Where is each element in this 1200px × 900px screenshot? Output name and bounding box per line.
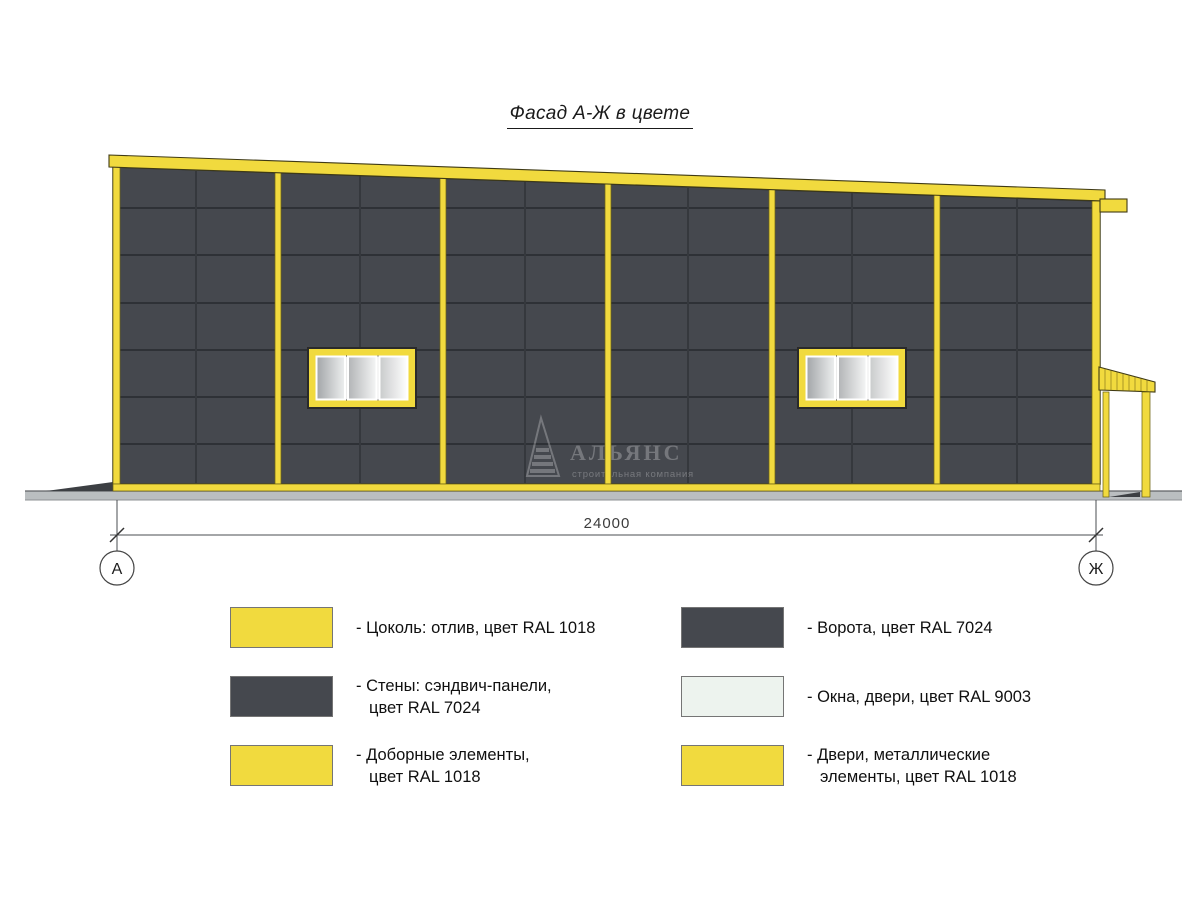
legend-label-line: - Окна, двери, цвет RAL 9003	[807, 686, 1031, 708]
column-mullion	[605, 184, 611, 484]
legend-label-line: - Цоколь: отлив, цвет RAL 1018	[356, 617, 595, 639]
axis-label-right: Ж	[1089, 561, 1104, 578]
dimension-group: 24000 А Ж	[100, 500, 1113, 585]
plinth-flashing	[113, 484, 1100, 491]
legend-label-line: - Двери, металлические	[807, 744, 1017, 766]
canopy-post	[1103, 392, 1109, 497]
legend-item: - Доборные элементы,цвет RAL 1018	[230, 745, 680, 786]
dimension-label: 24000	[584, 515, 631, 532]
legend-swatch	[681, 607, 784, 648]
legend-column-right: - Ворота, цвет RAL 7024- Окна, двери, цв…	[681, 607, 1131, 814]
watermark-subtitle: строительная компания	[572, 469, 694, 480]
legend-label-line: - Ворота, цвет RAL 7024	[807, 617, 993, 639]
watermark-name: АЛЬЯНС	[570, 440, 683, 465]
legend-item: - Ворота, цвет RAL 7024	[681, 607, 1131, 648]
legend-label-line: - Доборные элементы,	[356, 744, 530, 766]
legend-label: - Доборные элементы,цвет RAL 1018	[356, 744, 530, 788]
window-left	[308, 348, 416, 408]
legend-swatch	[681, 676, 784, 717]
legend-swatch	[230, 607, 333, 648]
column-mullion	[275, 172, 281, 484]
legend-item: - Окна, двери, цвет RAL 9003	[681, 676, 1131, 717]
legend-label-line: цвет RAL 7024	[356, 697, 552, 719]
legend-label-line: цвет RAL 1018	[356, 766, 530, 788]
legend-label: - Цоколь: отлив, цвет RAL 1018	[356, 617, 595, 639]
legend-swatch	[681, 745, 784, 786]
legend-label-line: элементы, цвет RAL 1018	[807, 766, 1017, 788]
window-right	[798, 348, 906, 408]
facade-drawing-sheet: Фасад А-Ж в цвете	[0, 0, 1200, 900]
legend-label: - Стены: сэндвич-панели,цвет RAL 7024	[356, 675, 552, 719]
legend-swatch	[230, 676, 333, 717]
legend-item: - Двери, металлическиеэлементы, цвет RAL…	[681, 745, 1131, 786]
legend-item: - Стены: сэндвич-панели,цвет RAL 7024	[230, 676, 680, 717]
column-mullion	[769, 189, 775, 484]
legend-label-line: - Стены: сэндвич-панели,	[356, 675, 552, 697]
legend-item: - Цоколь: отлив, цвет RAL 1018	[230, 607, 680, 648]
legend-label: - Ворота, цвет RAL 7024	[807, 617, 993, 639]
legend-label: - Окна, двери, цвет RAL 9003	[807, 686, 1031, 708]
entrance-canopy	[1099, 367, 1155, 497]
canopy-post	[1142, 392, 1150, 497]
edge-trim-left	[113, 167, 120, 484]
legend-swatch	[230, 745, 333, 786]
column-mullion	[440, 178, 446, 484]
ramp-left	[46, 482, 113, 491]
edge-trim-right	[1092, 201, 1100, 484]
legend-column-left: - Цоколь: отлив, цвет RAL 1018- Стены: с…	[230, 607, 680, 814]
ground-line	[25, 491, 1182, 500]
roof-overhang-tab	[1100, 199, 1127, 212]
legend-label: - Двери, металлическиеэлементы, цвет RAL…	[807, 744, 1017, 788]
axis-label-left: А	[112, 561, 123, 578]
axis-marker-left: А	[100, 551, 134, 585]
column-mullion	[934, 195, 940, 484]
axis-marker-right: Ж	[1079, 551, 1113, 585]
